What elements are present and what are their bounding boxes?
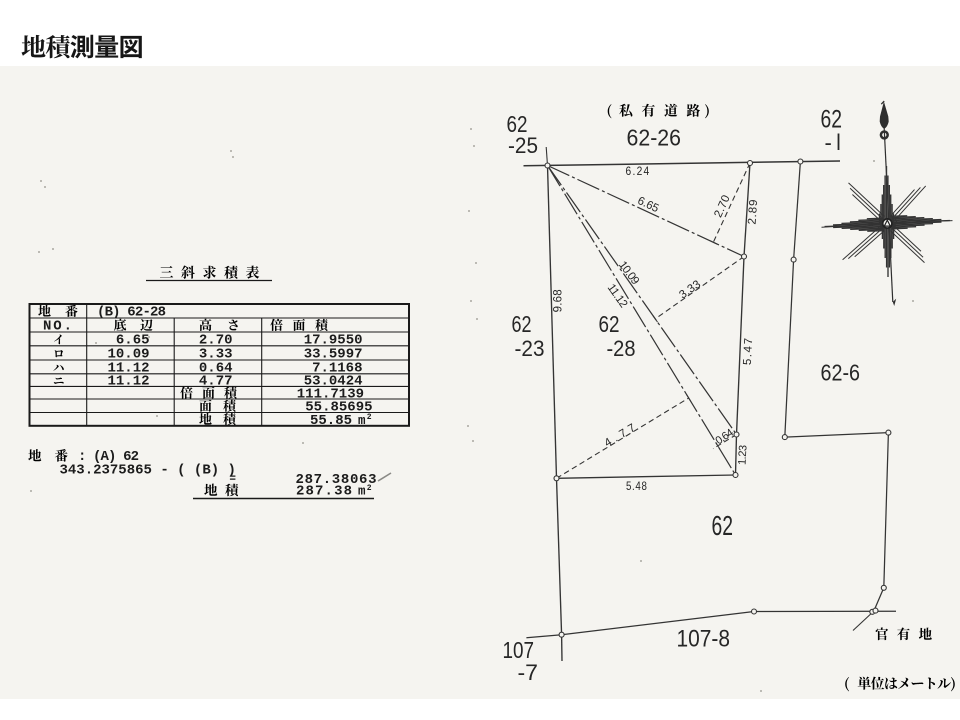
svg-text:9.68: 9.68 [553,289,565,312]
svg-text:=: = [229,474,236,486]
svg-text:62-26: 62-26 [627,125,682,151]
svg-text:2: 2 [367,413,372,422]
svg-text:2: 2 [367,484,372,493]
svg-text:5.47: 5.47 [742,338,755,366]
svg-text:m: m [358,414,366,428]
svg-text:-28: -28 [607,336,636,361]
svg-text:6.24: 6.24 [626,164,651,178]
svg-text:(B) 62-28: (B) 62-28 [97,305,166,321]
svg-text:NO.: NO. [43,319,72,335]
svg-text:62: 62 [512,311,532,337]
svg-text:11.12: 11.12 [107,374,149,390]
svg-text:-: - [825,130,832,155]
svg-text:343.2375865 - ( (B) ): 343.2375865 - ( (B) ) [60,463,236,479]
svg-text:2.89: 2.89 [747,199,761,225]
svg-text:-23: -23 [515,336,545,361]
svg-text:-7: -7 [518,660,539,685]
svg-text:-25: -25 [508,133,538,158]
svg-text:5.48: 5.48 [626,479,648,493]
svg-text:107-8: 107-8 [677,626,731,653]
svg-text:m: m [358,485,366,499]
svg-text:287.38: 287.38 [296,484,352,500]
svg-text:62: 62 [599,311,620,337]
svg-text:62: 62 [712,510,734,541]
svg-text:62-6: 62-6 [821,360,861,386]
svg-text:1.23: 1.23 [736,445,749,466]
svg-text:55.85: 55.85 [310,413,352,429]
